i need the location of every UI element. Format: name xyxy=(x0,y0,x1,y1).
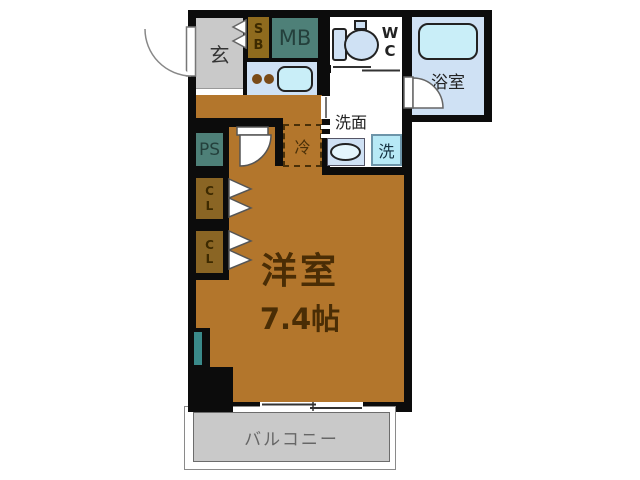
room-door-leaf-icon xyxy=(237,127,268,135)
closet2-door-icon xyxy=(229,250,251,269)
closet1-door-icon xyxy=(229,179,251,198)
shoe-box-door-icon xyxy=(233,34,246,48)
door-symbols-overlay xyxy=(0,0,640,480)
closet2-door-icon xyxy=(229,231,251,250)
washroom-door-track xyxy=(321,125,330,129)
bath-door-leaf-icon xyxy=(404,77,413,108)
floor-plan-canvas: バルコニー 玄 S B MB W C 洗面 洗 浴室 xyxy=(0,0,640,480)
washroom-door-track xyxy=(321,134,330,138)
shoe-box-door-icon xyxy=(233,20,246,34)
room-door-arc-icon xyxy=(240,135,271,166)
entrance-door-arc-icon xyxy=(145,29,191,76)
bath-door-arc-icon xyxy=(413,78,443,108)
entrance-door-leaf-icon xyxy=(187,27,196,76)
closet1-door-icon xyxy=(229,198,251,217)
